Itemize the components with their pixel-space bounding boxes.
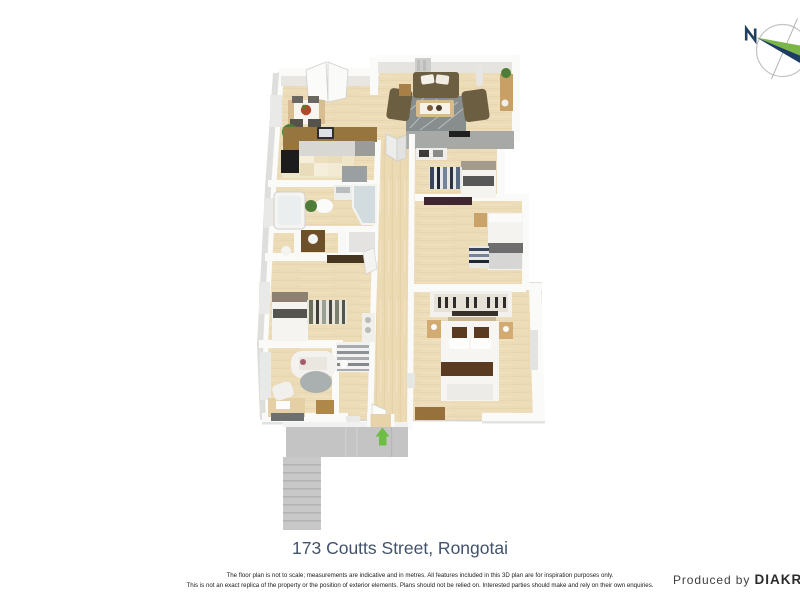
svg-text:The floor plan is not to scale: The floor plan is not to scale; measurem… xyxy=(227,572,614,579)
svg-text:This is not an exact replica o: This is not an exact replica of the prop… xyxy=(187,582,654,589)
svg-text:173 Coutts Street, Rongotai: 173 Coutts Street, Rongotai xyxy=(292,538,508,558)
svg-text:Produced by DIAKRIT: Produced by DIAKRIT xyxy=(673,572,800,587)
